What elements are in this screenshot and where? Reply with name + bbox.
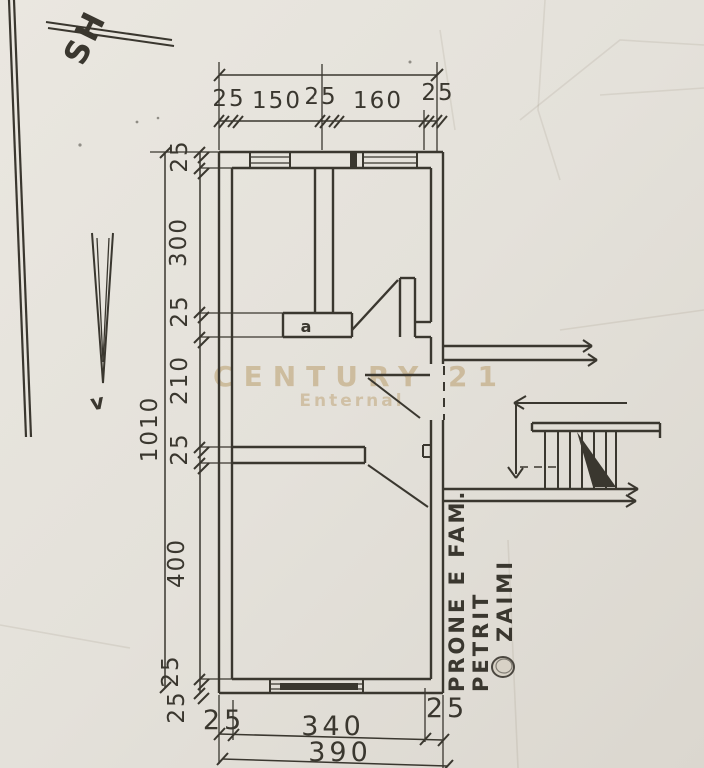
owner-note-line2: PETRIT	[469, 592, 493, 692]
dim-left-overall: 1010	[137, 396, 163, 463]
dim-top-3: 160	[353, 88, 403, 114]
dim-top-1: 150	[252, 88, 302, 114]
door-label: a	[301, 317, 312, 336]
dim-bottom-overall: 390	[308, 737, 372, 768]
dim-left-0: 25	[167, 139, 193, 172]
dim-bottom-0: 25	[203, 705, 245, 736]
dim-left-6: 25	[158, 654, 184, 687]
dim-bottom-2: 25	[426, 693, 468, 724]
dim-top-0: 25	[212, 86, 245, 112]
dim-left-4: 25	[167, 432, 193, 465]
window-pier	[350, 153, 357, 168]
stamp-blob	[492, 657, 514, 677]
watermark-brand: CENTURY 21	[213, 360, 507, 393]
owner-note-line3: ZAIMI	[493, 559, 517, 642]
dim-left-1: 300	[166, 217, 192, 267]
dim-top-4: 25	[421, 80, 454, 106]
scanned-floor-plan-page: SH v CENTURY 21 Enternal	[0, 0, 704, 768]
dim-left-3: 210	[167, 355, 193, 405]
dim-left-2: 25	[167, 294, 193, 327]
window-sill-band	[280, 683, 358, 690]
floor-plan-drawing: SH v CENTURY 21 Enternal	[0, 0, 704, 768]
dim-left-7: 25	[164, 690, 190, 723]
dim-top-2: 25	[304, 84, 337, 110]
dim-left-5: 400	[164, 538, 190, 588]
owner-note-line1: PRONE E FAM.	[445, 489, 469, 692]
